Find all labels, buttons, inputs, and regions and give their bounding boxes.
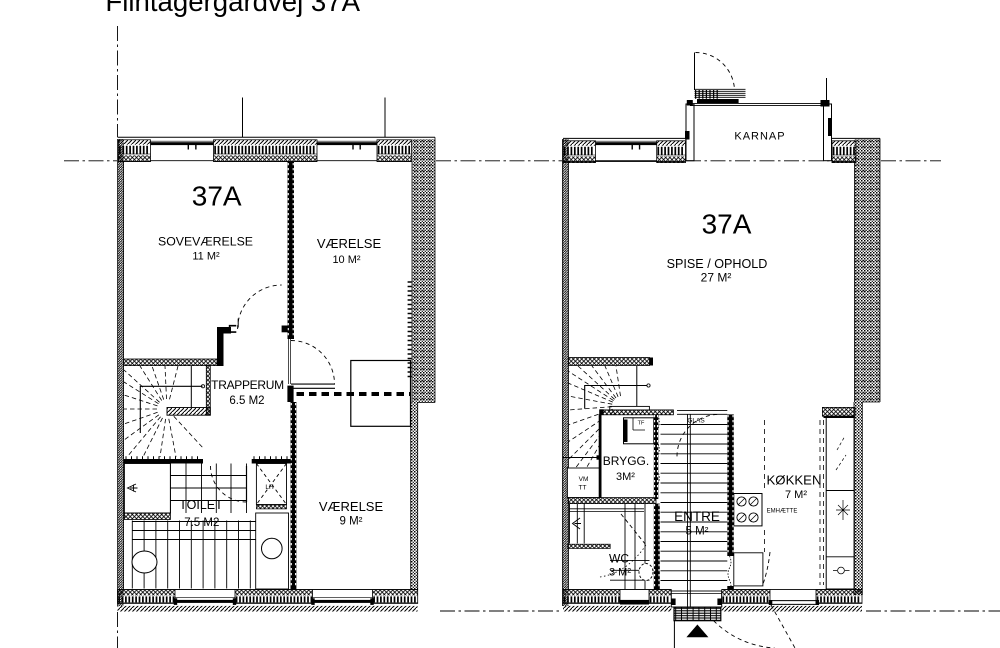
svg-text:TF: TF	[638, 421, 645, 427]
svg-text:27 M²: 27 M²	[701, 271, 732, 285]
svg-text:5 M²: 5 M²	[686, 526, 709, 538]
svg-text:6.5 M2: 6.5 M2	[229, 395, 264, 407]
svg-text:WC: WC	[609, 551, 629, 565]
svg-text:3M²: 3M²	[616, 471, 635, 483]
svg-text:TRAPPERUM: TRAPPERUM	[211, 378, 284, 392]
svg-text:7.5 M2: 7.5 M2	[184, 517, 219, 529]
svg-text:37A: 37A	[192, 181, 242, 212]
svg-text:ENTRE: ENTRE	[674, 509, 720, 524]
svg-text:KARNAP: KARNAP	[734, 131, 785, 143]
svg-text:LH: LH	[265, 484, 274, 491]
svg-text:Flintagergårdvej 37A: Flintagergårdvej 37A	[105, 0, 360, 17]
svg-text:10 M²: 10 M²	[332, 254, 360, 266]
svg-text:7 M²: 7 M²	[785, 489, 807, 501]
svg-text:3 M²: 3 M²	[609, 566, 631, 578]
svg-text:VÆRELSE: VÆRELSE	[317, 236, 382, 251]
svg-text:KØKKEN: KØKKEN	[767, 473, 822, 488]
svg-text:BRYGG.: BRYGG.	[603, 454, 649, 468]
svg-text:9 M²: 9 M²	[340, 516, 363, 528]
svg-text:VÆRELSE: VÆRELSE	[319, 499, 384, 514]
svg-text:VM: VM	[579, 476, 589, 483]
svg-text:SPISE / OPHOLD: SPISE / OPHOLD	[667, 257, 768, 271]
svg-text:EMHÆTTE: EMHÆTTE	[767, 509, 798, 515]
svg-text:11 M²: 11 M²	[192, 251, 220, 263]
svg-text:SOVEVÆRELSE: SOVEVÆRELSE	[158, 235, 253, 249]
svg-text:TT: TT	[579, 485, 587, 492]
svg-text:37A: 37A	[702, 209, 752, 240]
